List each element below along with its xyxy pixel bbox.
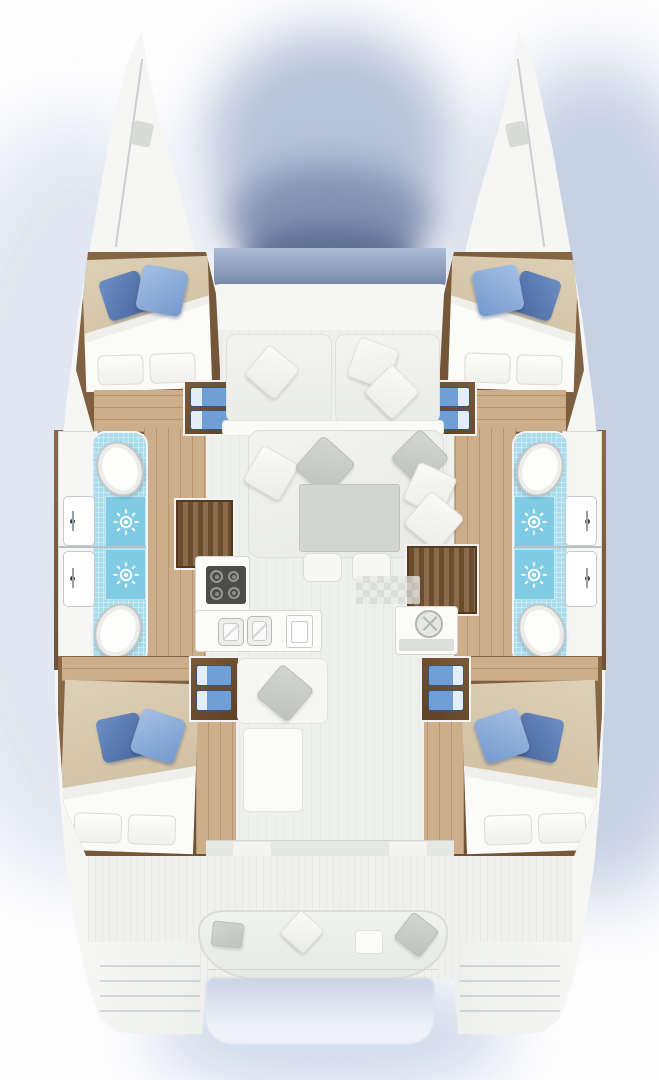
salon-table <box>299 484 400 552</box>
low-table <box>243 728 303 812</box>
white-pillow <box>127 814 176 846</box>
stern-recess <box>206 978 434 1044</box>
galley-sink <box>247 616 272 646</box>
burner-icon <box>228 587 240 599</box>
drawer <box>190 387 228 407</box>
head-partition-wall <box>514 546 601 548</box>
galley-sink <box>218 618 244 646</box>
white-pillow <box>484 814 533 846</box>
drawer <box>428 690 464 711</box>
round-sink-icon <box>415 610 443 638</box>
white-pillow <box>97 354 144 386</box>
drawer <box>196 665 232 686</box>
shower-forward <box>514 496 555 547</box>
drawer <box>428 665 464 686</box>
double-bed <box>82 256 213 392</box>
washbasin-forward <box>565 496 597 546</box>
head-partition-wall <box>59 546 146 548</box>
drawer <box>196 690 232 711</box>
swim-platform-port <box>100 960 200 1012</box>
head-vanity-counter <box>563 432 601 666</box>
white-pillow <box>73 812 122 844</box>
faucet-icon <box>70 519 75 524</box>
counter-shelf <box>399 639 454 651</box>
faucet-icon <box>70 576 75 581</box>
double-bed <box>461 680 601 855</box>
white-pillow <box>149 352 196 384</box>
white-pillow <box>516 354 563 386</box>
washbasin-aft <box>565 551 597 607</box>
washbasin-forward <box>63 496 95 546</box>
catamaran-floor-plan <box>0 0 659 1080</box>
shower-aft <box>514 549 555 600</box>
throw-pillow <box>211 920 244 948</box>
cockpit-table <box>355 930 383 954</box>
faucet-icon <box>585 519 590 524</box>
shower-head-icon <box>520 560 550 590</box>
aft-storage-steps <box>191 658 238 720</box>
double-bed <box>59 680 199 855</box>
burner-icon <box>210 587 223 600</box>
stove-4-burner <box>206 566 246 604</box>
burner-icon <box>210 570 223 583</box>
ottoman <box>303 553 342 582</box>
shower-aft <box>105 549 146 600</box>
blue-pillow <box>135 263 189 317</box>
head-vanity-counter <box>59 432 97 666</box>
shower-head-icon <box>111 507 141 537</box>
floor-hatch <box>356 576 420 604</box>
swim-platform-starboard <box>460 960 560 1012</box>
shower-forward <box>105 496 146 547</box>
double-bed <box>448 256 579 392</box>
white-pillow <box>464 352 511 384</box>
aft-storage-steps <box>422 658 469 720</box>
faucet-icon <box>585 576 590 581</box>
blue-pillow <box>471 263 525 317</box>
washbasin-aft <box>63 551 95 607</box>
burner-icon <box>228 571 239 582</box>
oven-icon <box>286 615 313 648</box>
shower-head-icon <box>520 507 550 537</box>
shower-head-icon <box>111 560 141 590</box>
white-pillow <box>538 812 587 844</box>
